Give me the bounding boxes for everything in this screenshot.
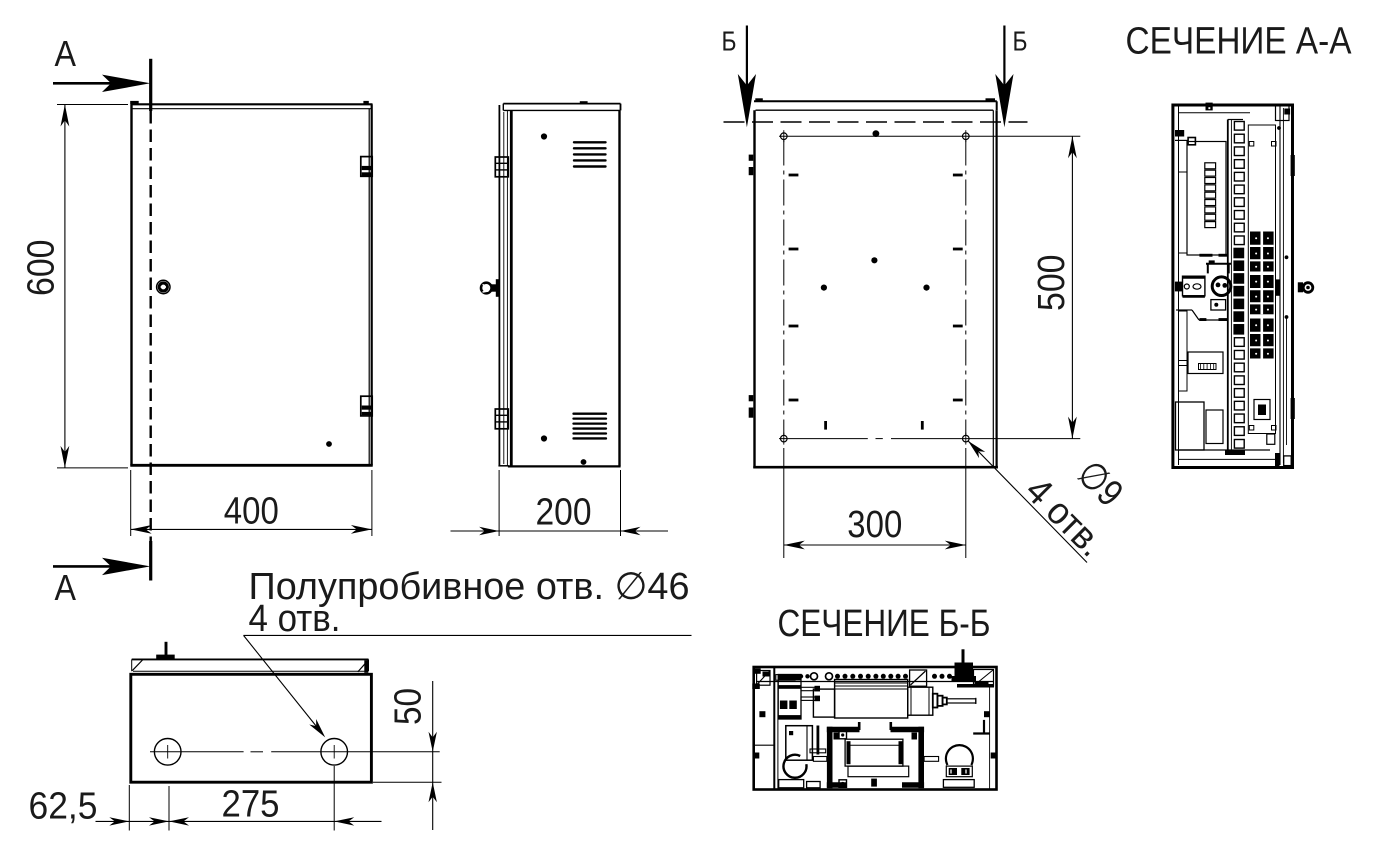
svg-text:300: 300: [847, 504, 902, 546]
svg-text:500: 500: [1031, 255, 1073, 312]
svg-text:50: 50: [388, 688, 430, 725]
svg-text:А: А: [55, 567, 77, 608]
svg-text:СЕЧЕНИЕ Б-Б: СЕЧЕНИЕ Б-Б: [778, 603, 991, 645]
svg-text:275: 275: [222, 784, 280, 826]
svg-text:600: 600: [21, 240, 63, 297]
svg-text:Б: Б: [722, 26, 737, 57]
svg-text:400: 400: [224, 491, 279, 533]
svg-text:А: А: [55, 33, 77, 74]
svg-text:Б: Б: [1013, 26, 1028, 57]
svg-text:62,5: 62,5: [29, 786, 98, 828]
svg-text:200: 200: [536, 492, 592, 534]
svg-text:СЕЧЕНИЕ А-А: СЕЧЕНИЕ А-А: [1126, 21, 1353, 63]
svg-text:4 отв.: 4 отв.: [249, 598, 341, 640]
